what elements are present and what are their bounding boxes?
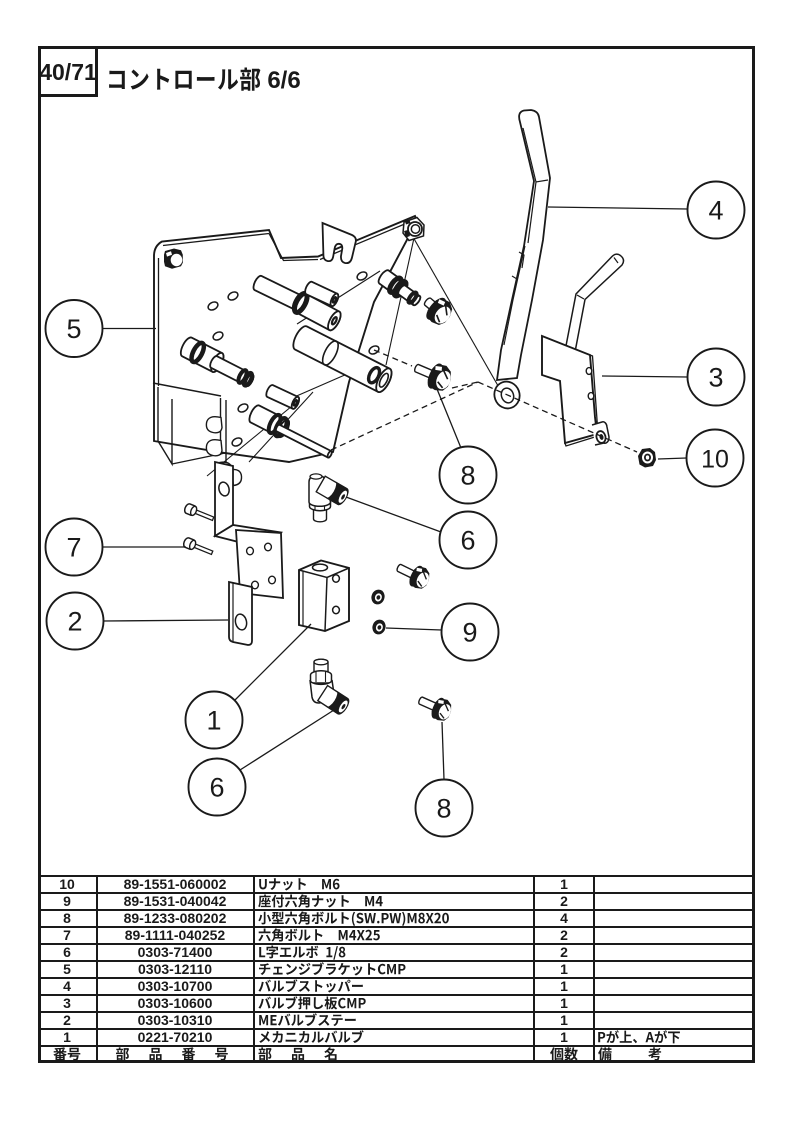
svg-text:0303-10700: 0303-10700: [138, 978, 213, 994]
svg-text:8: 8: [460, 461, 475, 491]
svg-text:2: 2: [63, 1012, 71, 1028]
svg-text:7: 7: [66, 533, 81, 563]
svg-text:6: 6: [63, 944, 71, 960]
svg-text:3: 3: [708, 363, 723, 393]
svg-text:0303-10600: 0303-10600: [138, 995, 213, 1011]
svg-text:2: 2: [560, 944, 568, 960]
svg-text:1: 1: [560, 961, 568, 977]
svg-text:2: 2: [560, 893, 568, 909]
svg-text:4: 4: [708, 196, 723, 226]
svg-text:10: 10: [701, 446, 729, 474]
svg-text:1: 1: [560, 978, 568, 994]
svg-text:89-1233-080202: 89-1233-080202: [124, 910, 227, 926]
svg-text:1: 1: [63, 1029, 71, 1045]
svg-text:1: 1: [206, 706, 221, 736]
svg-text:40/71: 40/71: [39, 59, 97, 85]
svg-text:0303-12110: 0303-12110: [138, 961, 212, 977]
svg-text:1: 1: [560, 1029, 568, 1045]
svg-text:4: 4: [63, 978, 71, 994]
svg-text:0221-70210: 0221-70210: [138, 1029, 213, 1045]
svg-text:6: 6: [209, 773, 224, 803]
svg-text:89-1531-040042: 89-1531-040042: [124, 893, 227, 909]
svg-text:3: 3: [63, 995, 71, 1011]
svg-text:1: 1: [560, 876, 568, 892]
svg-text:7: 7: [63, 927, 71, 943]
svg-text:0303-10310: 0303-10310: [138, 1012, 213, 1028]
svg-text:5: 5: [63, 961, 71, 977]
svg-text:10: 10: [59, 876, 75, 892]
svg-text:6: 6: [460, 526, 475, 556]
svg-text:2: 2: [560, 927, 568, 943]
svg-text:8: 8: [436, 794, 451, 824]
svg-text:1: 1: [560, 995, 568, 1011]
svg-text:1: 1: [560, 1012, 568, 1028]
svg-text:0303-71400: 0303-71400: [138, 944, 213, 960]
svg-text:8: 8: [63, 910, 71, 926]
svg-text:2: 2: [67, 607, 82, 637]
svg-text:9: 9: [63, 893, 71, 909]
svg-text:9: 9: [462, 618, 477, 648]
svg-text:6/6: 6/6: [267, 67, 300, 94]
svg-text:89-1551-060002: 89-1551-060002: [124, 876, 227, 892]
svg-text:4: 4: [560, 910, 568, 926]
svg-text:89-1111-040252: 89-1111-040252: [125, 927, 226, 943]
svg-text:5: 5: [66, 314, 81, 344]
